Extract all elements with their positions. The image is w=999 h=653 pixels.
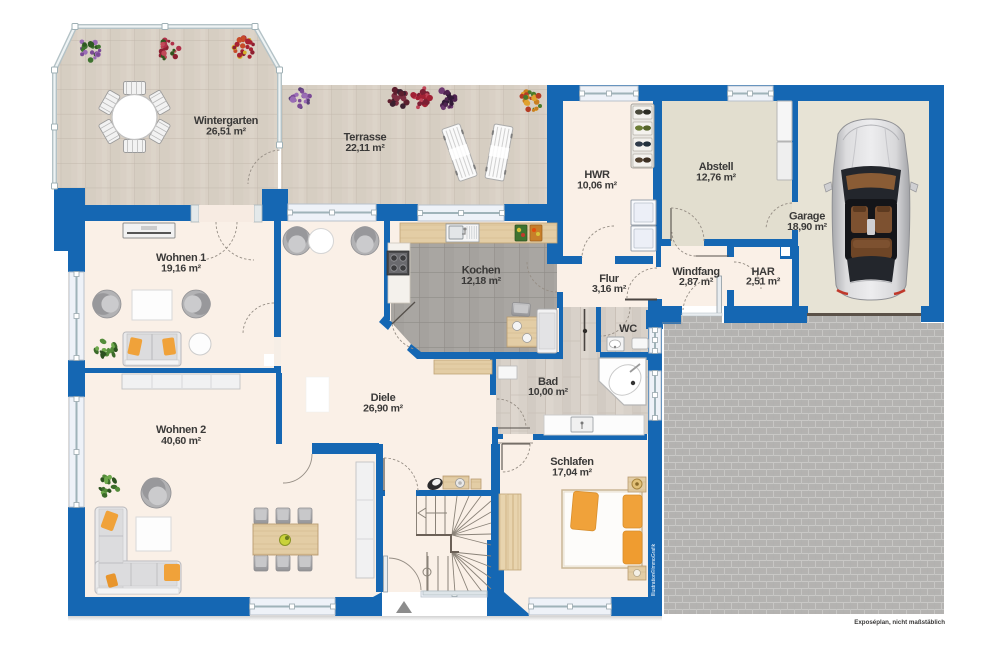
svg-text:WC: WC (619, 323, 637, 335)
svg-text:17,04 m²: 17,04 m² (552, 467, 592, 479)
svg-text:26,51 m²: 26,51 m² (206, 126, 246, 138)
svg-text:10,00 m²: 10,00 m² (528, 386, 568, 398)
svg-text:22,11 m²: 22,11 m² (345, 142, 385, 154)
svg-text:2,51 m²: 2,51 m² (746, 276, 781, 288)
svg-text:19,16 m²: 19,16 m² (161, 263, 201, 275)
svg-text:12,18 m²: 12,18 m² (461, 275, 501, 287)
svg-text:Exposéplan, nicht maßstäblich: Exposéplan, nicht maßstäblich (854, 619, 945, 626)
svg-text:18,90 m²: 18,90 m² (787, 221, 827, 233)
svg-text:10,06 m²: 10,06 m² (577, 180, 617, 192)
svg-text:Illustration©ImmoGrafik: Illustration©ImmoGrafik (650, 543, 657, 596)
svg-text:2,87 m²: 2,87 m² (679, 276, 714, 288)
svg-text:12,76 m²: 12,76 m² (696, 172, 736, 184)
svg-text:3,16 m²: 3,16 m² (592, 283, 627, 295)
svg-text:26,90 m²: 26,90 m² (363, 403, 403, 415)
svg-text:40,60 m²: 40,60 m² (161, 435, 201, 447)
